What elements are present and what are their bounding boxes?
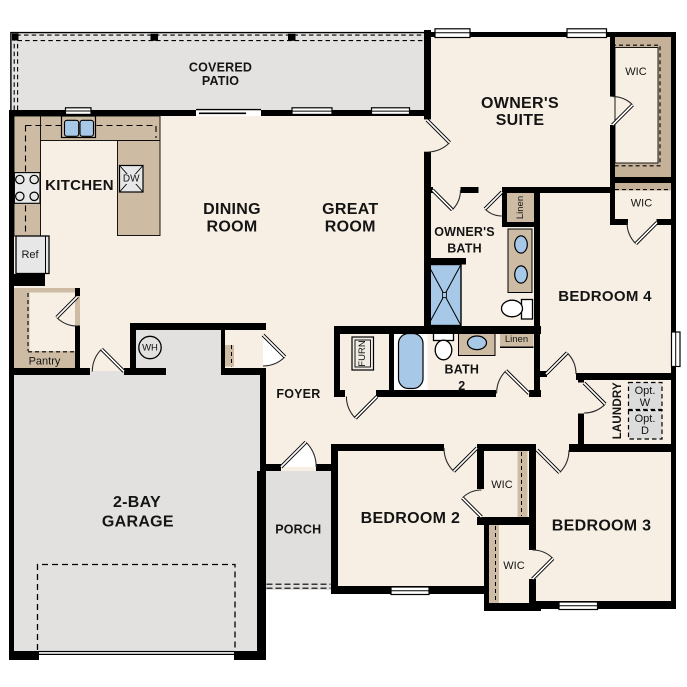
svg-text:GARAGE: GARAGE	[102, 514, 174, 531]
svg-text:Opt.: Opt.	[635, 385, 656, 397]
svg-text:WIC: WIC	[631, 198, 652, 210]
svg-text:FURN: FURN	[357, 340, 368, 367]
svg-text:COVERED: COVERED	[189, 61, 252, 75]
svg-text:DW: DW	[123, 174, 140, 185]
svg-text:KITCHEN: KITCHEN	[45, 177, 114, 194]
svg-text:BEDROOM 2: BEDROOM 2	[361, 510, 461, 527]
svg-text:BEDROOM 4: BEDROOM 4	[558, 288, 652, 305]
svg-text:Linen: Linen	[515, 196, 526, 219]
svg-text:ROOM: ROOM	[325, 219, 376, 236]
svg-text:WIC: WIC	[503, 560, 524, 572]
svg-text:ROOM: ROOM	[207, 219, 258, 236]
svg-text:DINING: DINING	[203, 201, 261, 218]
svg-text:W: W	[640, 397, 651, 409]
svg-text:D: D	[641, 425, 649, 437]
svg-text:PORCH: PORCH	[275, 522, 321, 536]
svg-text:Linen: Linen	[505, 334, 528, 345]
svg-text:WIC: WIC	[491, 479, 512, 491]
svg-text:BATH: BATH	[445, 363, 480, 377]
svg-text:PATIO: PATIO	[202, 74, 239, 88]
svg-text:OWNER'S: OWNER'S	[481, 95, 559, 112]
svg-text:WH: WH	[142, 343, 158, 354]
svg-text:2: 2	[458, 379, 465, 393]
svg-text:BATH: BATH	[447, 242, 482, 256]
svg-text:Opt.: Opt.	[635, 413, 656, 425]
svg-text:WIC: WIC	[625, 66, 646, 78]
svg-text:FOYER: FOYER	[276, 387, 320, 401]
svg-text:OWNER'S: OWNER'S	[434, 225, 495, 239]
svg-text:Ref: Ref	[21, 249, 39, 261]
svg-text:GREAT: GREAT	[322, 201, 378, 218]
svg-text:BEDROOM 3: BEDROOM 3	[552, 517, 652, 534]
svg-text:2-BAY: 2-BAY	[113, 494, 161, 511]
svg-text:LAUNDRY: LAUNDRY	[612, 382, 624, 439]
svg-text:Pantry: Pantry	[29, 356, 61, 368]
svg-text:SUITE: SUITE	[496, 112, 545, 129]
